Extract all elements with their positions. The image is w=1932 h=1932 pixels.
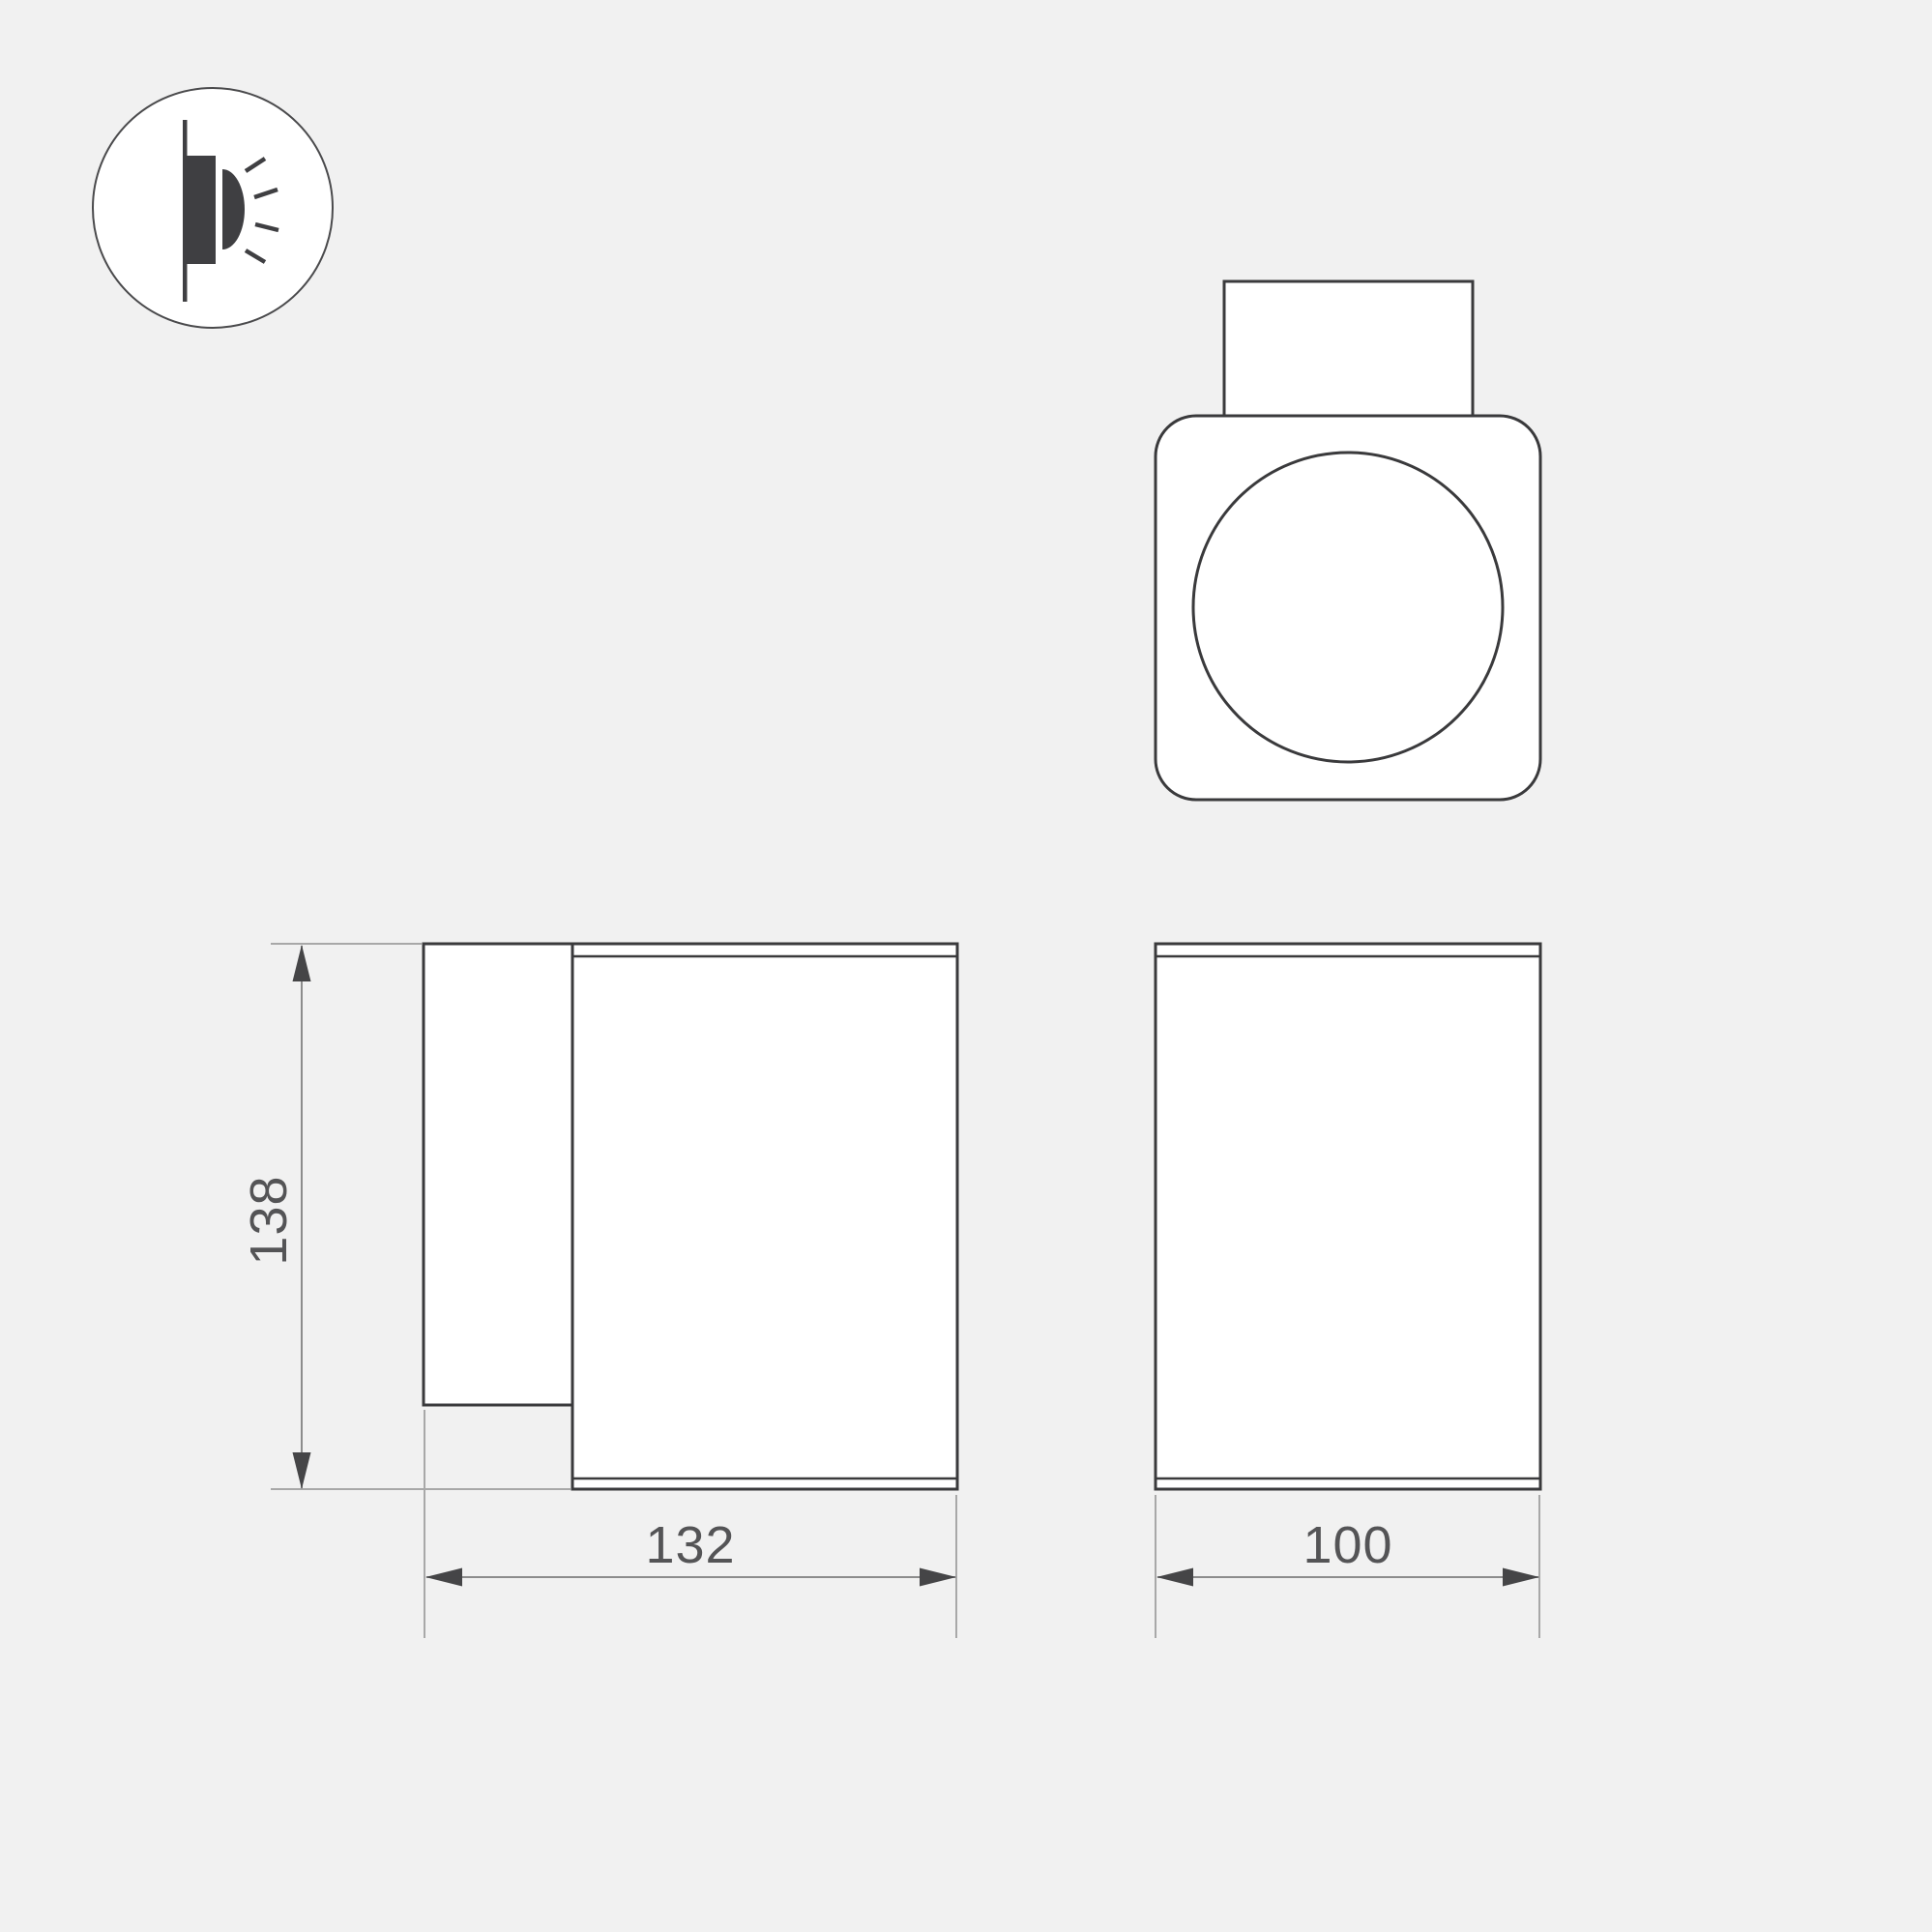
front-width-dimension: 100 xyxy=(1156,1495,1539,1638)
top-view xyxy=(1156,281,1540,800)
front-width-arrow-right xyxy=(1503,1568,1539,1587)
side-width-arrow-left xyxy=(425,1568,462,1587)
height-arrow-up xyxy=(293,945,311,981)
side-width-dimension-label: 132 xyxy=(645,1516,735,1574)
drawing-canvas: 138 132 100 xyxy=(0,0,1932,1932)
front-width-arrow-left xyxy=(1156,1568,1193,1587)
side-width-arrow-right xyxy=(920,1568,956,1587)
front-width-dimension-label: 100 xyxy=(1303,1516,1392,1574)
top-view-lens-circle xyxy=(1193,453,1503,762)
height-dimension-label: 138 xyxy=(240,1175,298,1265)
side-view-body xyxy=(572,944,957,1489)
dimension-drawing: 138 132 100 xyxy=(0,0,1932,1932)
top-view-mount-bracket xyxy=(1224,281,1473,416)
height-arrow-down xyxy=(293,1452,311,1489)
front-view xyxy=(1156,944,1540,1489)
icon-fixture-body xyxy=(186,156,216,264)
side-view-wall-plate xyxy=(424,944,572,1405)
wall-light-icon xyxy=(93,88,333,328)
side-view xyxy=(424,944,957,1489)
front-view-body xyxy=(1156,944,1540,1489)
